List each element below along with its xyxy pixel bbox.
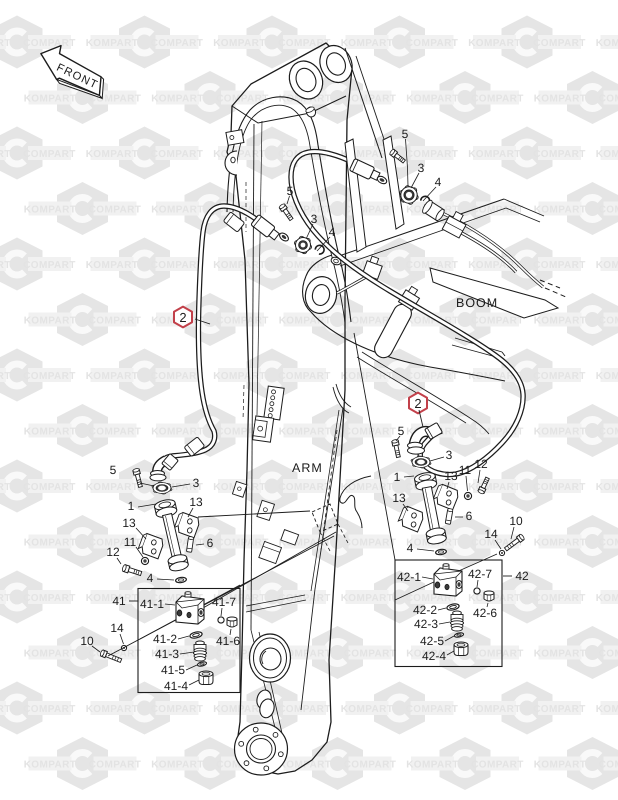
svg-text:ARM: ARM (292, 461, 323, 475)
svg-text:14: 14 (484, 527, 498, 541)
svg-text:42-2: 42-2 (413, 603, 437, 617)
svg-text:42-6: 42-6 (473, 606, 497, 620)
svg-text:13: 13 (189, 495, 203, 509)
svg-text:42-5: 42-5 (420, 634, 444, 648)
svg-text:10: 10 (80, 634, 94, 648)
svg-text:42-7: 42-7 (468, 567, 492, 581)
svg-text:6: 6 (207, 536, 214, 550)
svg-text:1: 1 (394, 470, 401, 484)
svg-text:10: 10 (509, 514, 523, 528)
svg-text:3: 3 (193, 476, 200, 490)
svg-text:3: 3 (418, 161, 425, 175)
svg-text:12: 12 (106, 545, 120, 559)
svg-text:BOOM: BOOM (456, 296, 498, 310)
svg-text:1: 1 (128, 499, 135, 513)
svg-text:4: 4 (435, 175, 442, 189)
svg-text:2: 2 (179, 310, 186, 325)
svg-text:4: 4 (147, 571, 154, 585)
svg-text:5: 5 (110, 463, 117, 477)
svg-text:42: 42 (515, 569, 529, 583)
svg-text:42-1: 42-1 (397, 570, 421, 584)
svg-text:11: 11 (124, 535, 137, 549)
svg-text:5: 5 (402, 127, 409, 141)
svg-text:3: 3 (446, 448, 453, 462)
svg-text:13: 13 (392, 491, 406, 505)
svg-text:41-1: 41-1 (140, 597, 164, 611)
svg-text:41-7: 41-7 (212, 595, 236, 609)
svg-text:41-5: 41-5 (161, 663, 185, 677)
svg-text:11: 11 (459, 463, 472, 477)
svg-text:41-6: 41-6 (216, 634, 240, 648)
svg-text:41-3: 41-3 (155, 647, 179, 661)
svg-text:41-4: 41-4 (164, 679, 188, 693)
svg-text:6: 6 (466, 509, 473, 523)
svg-text:4: 4 (407, 541, 414, 555)
svg-text:14: 14 (110, 621, 124, 635)
svg-text:41-2: 41-2 (153, 632, 177, 646)
svg-text:2: 2 (414, 396, 421, 411)
svg-text:4: 4 (329, 225, 336, 239)
svg-text:5: 5 (287, 184, 294, 198)
svg-text:42-3: 42-3 (414, 617, 438, 631)
svg-text:12: 12 (474, 457, 488, 471)
svg-text:41: 41 (112, 594, 126, 608)
svg-text:3: 3 (311, 212, 318, 226)
svg-text:5: 5 (398, 424, 405, 438)
svg-text:13: 13 (122, 516, 136, 530)
svg-text:42-4: 42-4 (422, 649, 446, 663)
svg-text:13: 13 (444, 469, 458, 483)
